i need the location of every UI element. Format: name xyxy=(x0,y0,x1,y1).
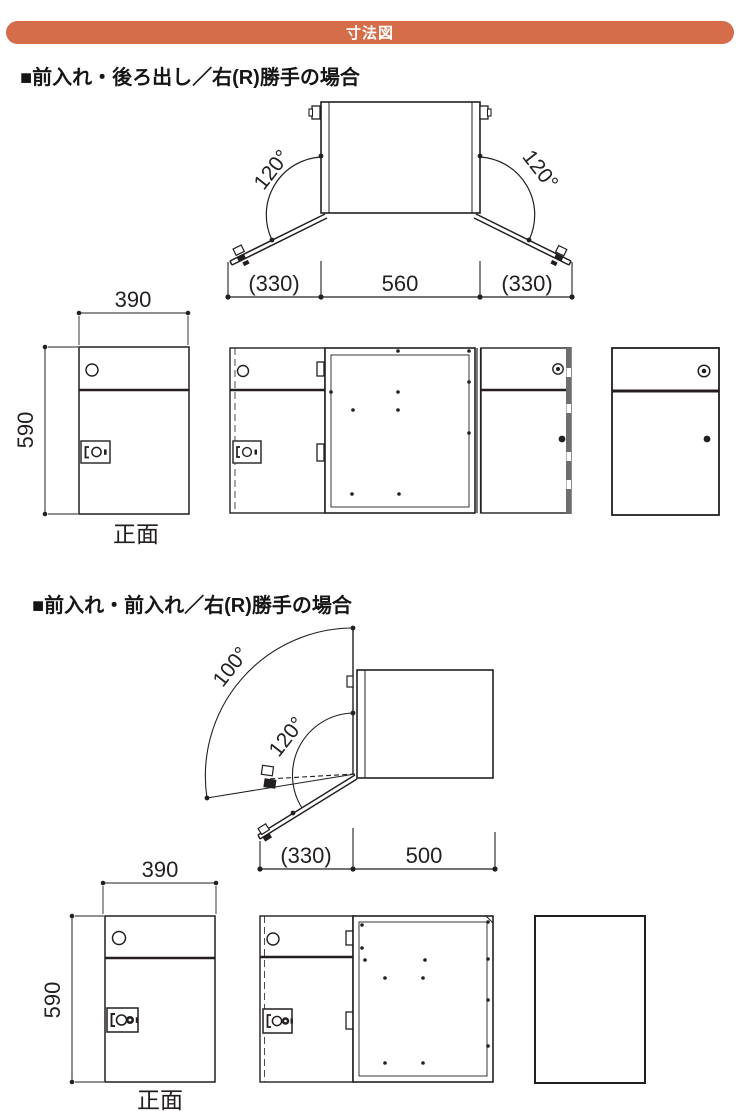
front-caption: 正面 xyxy=(137,1087,183,1111)
knob-dot xyxy=(704,436,711,443)
lock-unit xyxy=(81,441,110,463)
keyhole xyxy=(113,932,126,945)
dim-330-right: (330) xyxy=(501,271,552,296)
keyhole xyxy=(86,364,98,376)
plan-dimension-line: (330) 560 (330) xyxy=(225,261,574,300)
hinge-left xyxy=(312,106,320,119)
hinge-right xyxy=(480,106,488,119)
keyhole xyxy=(238,366,249,377)
plan-dimension-line: (330) 500 xyxy=(257,828,497,872)
box-interior xyxy=(325,348,475,513)
section2-drawing: 100° 120° (330) xyxy=(0,615,740,1111)
header-banner: 寸法図 xyxy=(6,21,734,44)
front-caption: 正面 xyxy=(113,521,159,547)
plan-left-door-open: 120° xyxy=(230,146,327,266)
door-latch-keep xyxy=(261,765,355,788)
box-interior xyxy=(353,916,493,1082)
angle-label-right: 120° xyxy=(518,146,563,194)
front-view-closed: 390 590 正面 xyxy=(13,287,190,547)
knob-dot xyxy=(559,436,566,443)
front-view-closed: 390 590 正面 xyxy=(40,857,218,1111)
cylinder-keyhole xyxy=(698,365,710,377)
section1-drawing: 120° 120° (330) 560 (330) xyxy=(0,88,740,560)
lock-unit xyxy=(263,1009,293,1033)
dim-width: 390 xyxy=(142,857,179,882)
lock-unit xyxy=(107,1008,138,1032)
dim-330: (330) xyxy=(280,843,331,868)
rear-view xyxy=(612,348,719,515)
lock-unit xyxy=(233,441,261,463)
dim-330-left: (330) xyxy=(248,271,299,296)
dim-500: 500 xyxy=(406,843,443,868)
section1-title: ■前入れ・後ろ出し／右(R)勝手の場合 xyxy=(20,61,360,90)
plan-view-box xyxy=(309,102,491,213)
plan-right-door-open: 120° xyxy=(474,146,571,266)
cylinder-keyhole xyxy=(553,364,563,374)
angle-label-inner: 120° xyxy=(265,713,310,761)
angle-label-outer: 100° xyxy=(209,643,254,691)
dim-560: 560 xyxy=(382,271,419,296)
front-view-open xyxy=(260,916,493,1082)
keyhole xyxy=(267,933,279,945)
section2-title: ■前入れ・前入れ／右(R)勝手の場合 xyxy=(32,589,352,618)
dim-height: 590 xyxy=(40,982,65,1019)
rear-view xyxy=(535,916,645,1083)
plan-view-box: 100° 120° xyxy=(205,626,493,842)
page-title: 寸法図 xyxy=(346,22,394,43)
front-view-open xyxy=(230,348,572,513)
dimension-sheet: 寸法図 ■前入れ・後ろ出し／右(R)勝手の場合 ■前入れ・前入れ／右(R)勝手の… xyxy=(0,0,740,1111)
dim-height: 590 xyxy=(13,412,38,449)
dim-width: 390 xyxy=(115,287,152,312)
